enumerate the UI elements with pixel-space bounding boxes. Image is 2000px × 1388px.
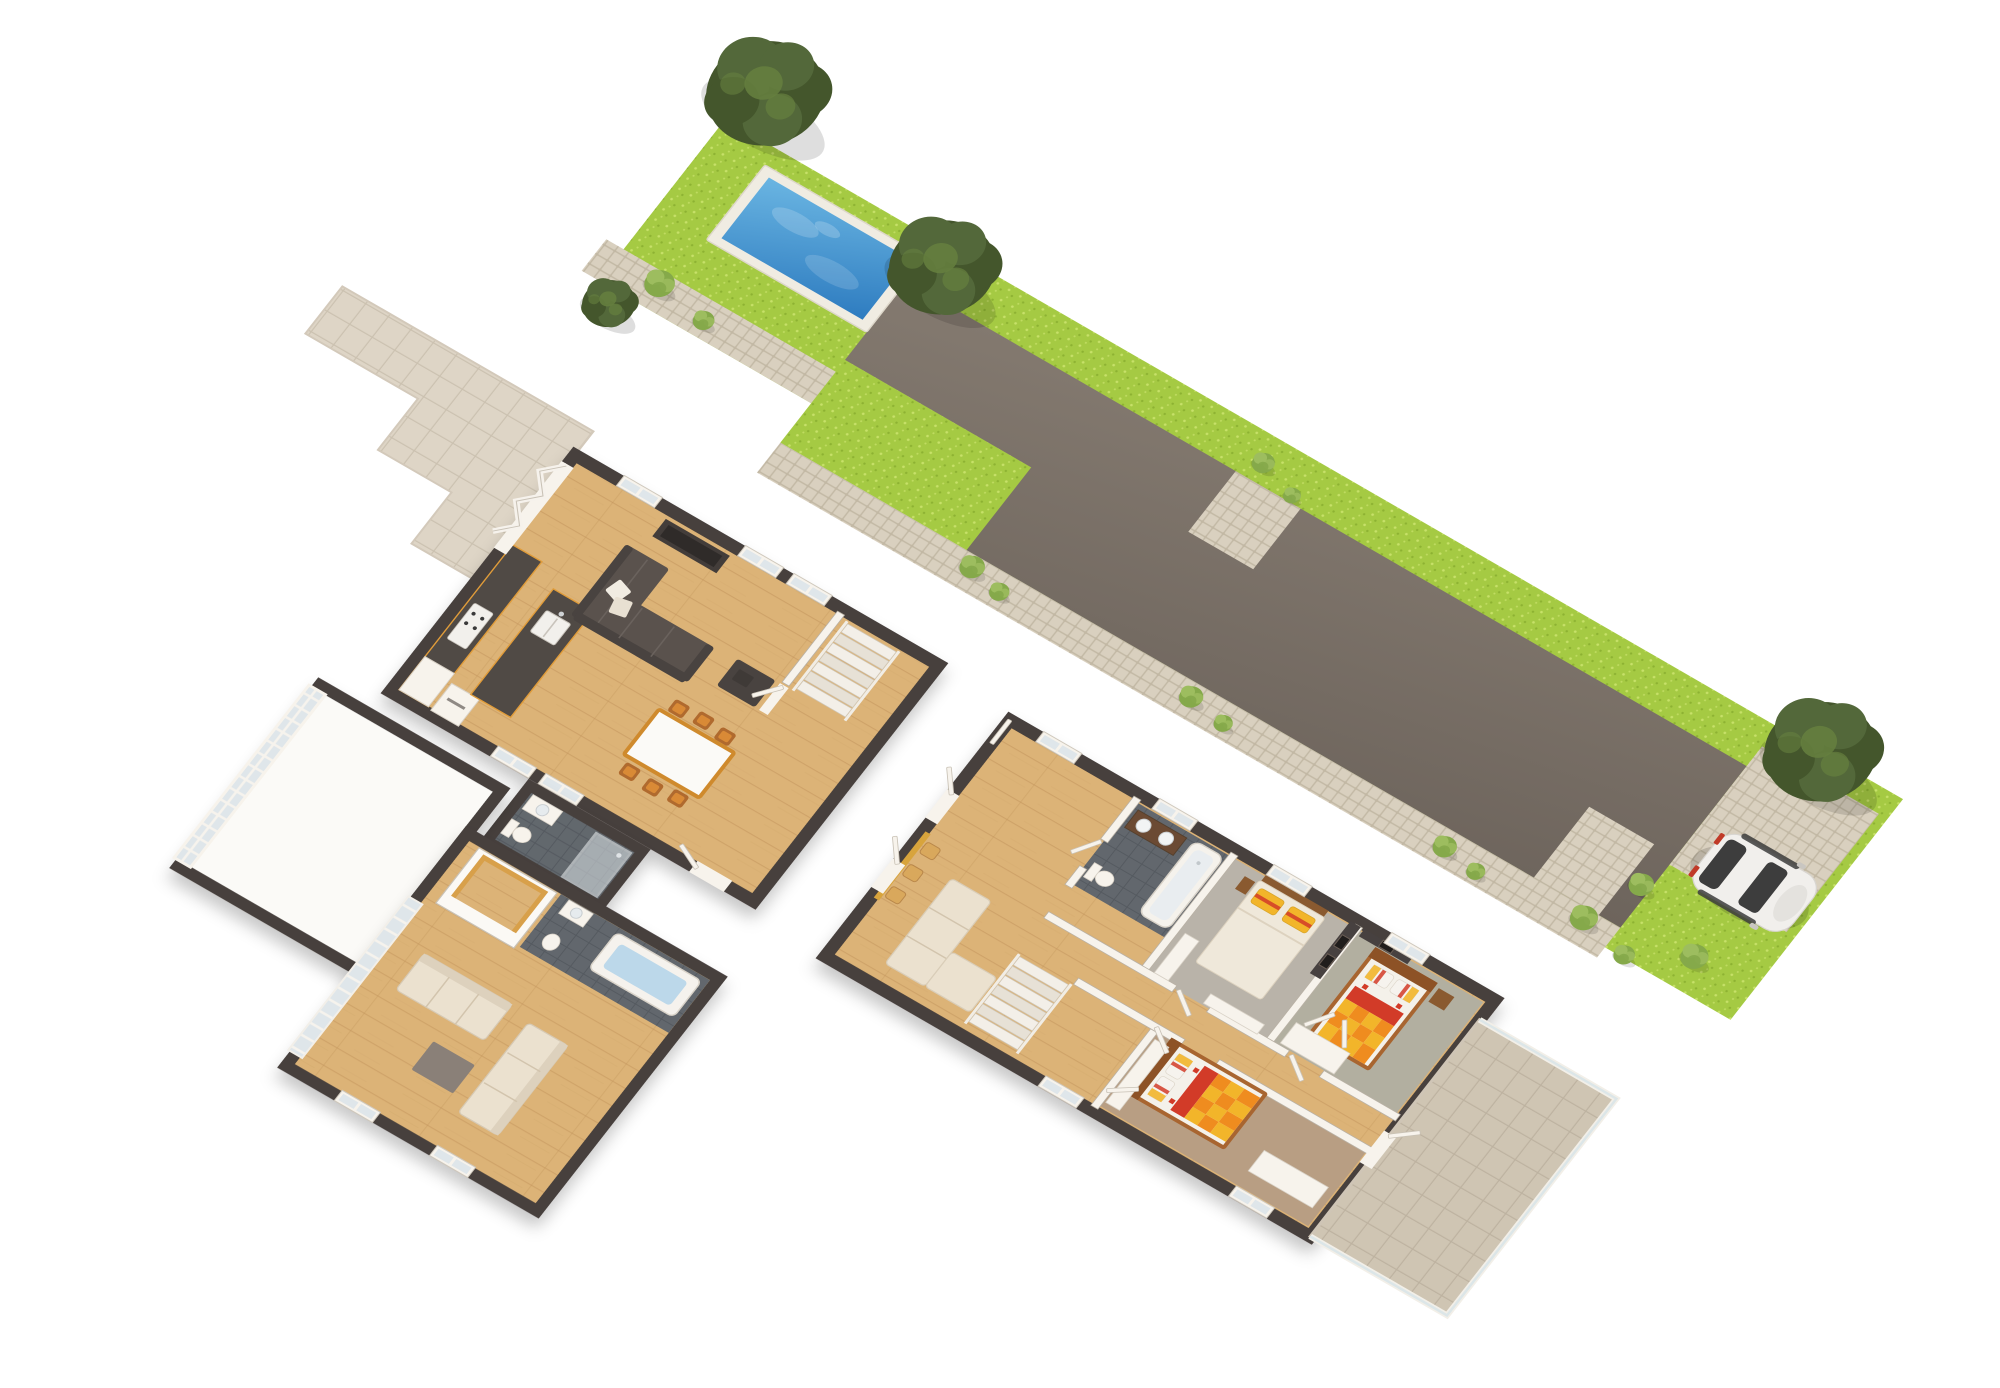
floorplan-scene — [0, 0, 2000, 1388]
floor-plan-render — [0, 0, 2000, 1388]
